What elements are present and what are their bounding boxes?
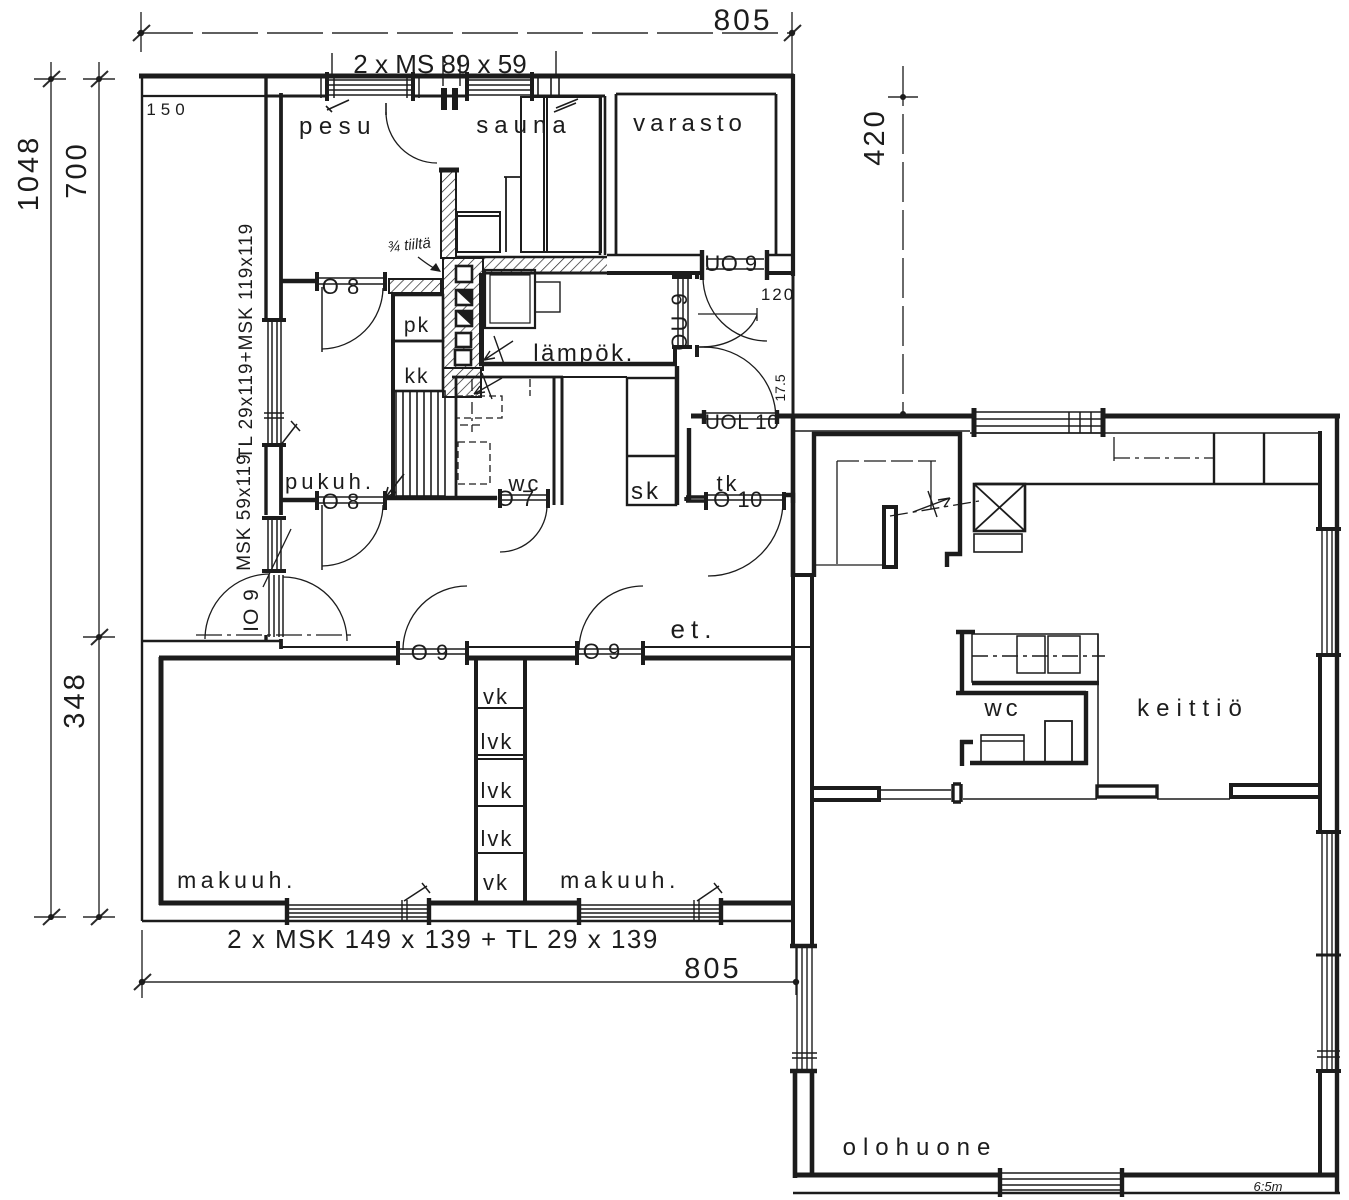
svg-text:O 7: O 7 — [497, 486, 535, 511]
svg-text:IO 9: IO 9 — [240, 588, 263, 632]
svg-text:17.5: 17.5 — [772, 374, 788, 401]
svg-text:et.: et. — [671, 614, 718, 644]
svg-text:vk: vk — [483, 870, 509, 895]
svg-text:sauna: sauna — [476, 112, 571, 139]
svg-text:MSK 59x119: MSK 59x119 — [234, 453, 255, 570]
svg-text:805: 805 — [713, 4, 772, 37]
svg-text:UOL 10: UOL 10 — [705, 411, 780, 434]
svg-text:O 9: O 9 — [583, 639, 621, 664]
svg-text:makuuh.: makuuh. — [560, 867, 680, 893]
svg-text:lvk: lvk — [481, 729, 514, 754]
svg-text:wc: wc — [983, 695, 1021, 722]
svg-text:700: 700 — [61, 141, 93, 198]
svg-text:O 8: O 8 — [322, 274, 360, 299]
svg-text:lämpök.: lämpök. — [533, 340, 635, 367]
svg-text:pk: pk — [404, 314, 430, 337]
svg-text:olohuone: olohuone — [843, 1134, 998, 1161]
svg-text:348: 348 — [59, 671, 91, 728]
svg-text:O 8: O 8 — [322, 489, 360, 514]
svg-text:420: 420 — [859, 108, 891, 165]
svg-text:vk: vk — [483, 684, 509, 709]
svg-text:O 10: O 10 — [713, 487, 763, 512]
svg-text:kk: kk — [405, 365, 430, 388]
svg-text:150: 150 — [146, 100, 189, 119]
svg-text:TL 29x119+MSK 119x119: TL 29x119+MSK 119x119 — [236, 223, 257, 459]
svg-text:varasto: varasto — [633, 110, 747, 137]
svg-text:keittiö: keittiö — [1137, 695, 1249, 722]
svg-text:pesu: pesu — [299, 113, 377, 140]
svg-text:O 9: O 9 — [411, 640, 449, 665]
svg-text:UO 9: UO 9 — [704, 251, 757, 276]
svg-text:805: 805 — [684, 953, 741, 985]
svg-text:120: 120 — [761, 285, 795, 304]
svg-text:sk: sk — [631, 478, 661, 505]
svg-text:2 x MSK 149 x 139 + TL 29 x: 2 x MSK 149 x 139 + TL 29 x 139 — [227, 924, 659, 954]
svg-text:lvk: lvk — [481, 826, 514, 851]
svg-text:OU 9: OU 9 — [667, 291, 692, 350]
svg-text:1048: 1048 — [13, 135, 45, 212]
svg-text:lvk: lvk — [481, 778, 514, 803]
svg-text:6:5m: 6:5m — [1254, 1179, 1283, 1194]
svg-text:makuuh.: makuuh. — [177, 867, 297, 893]
